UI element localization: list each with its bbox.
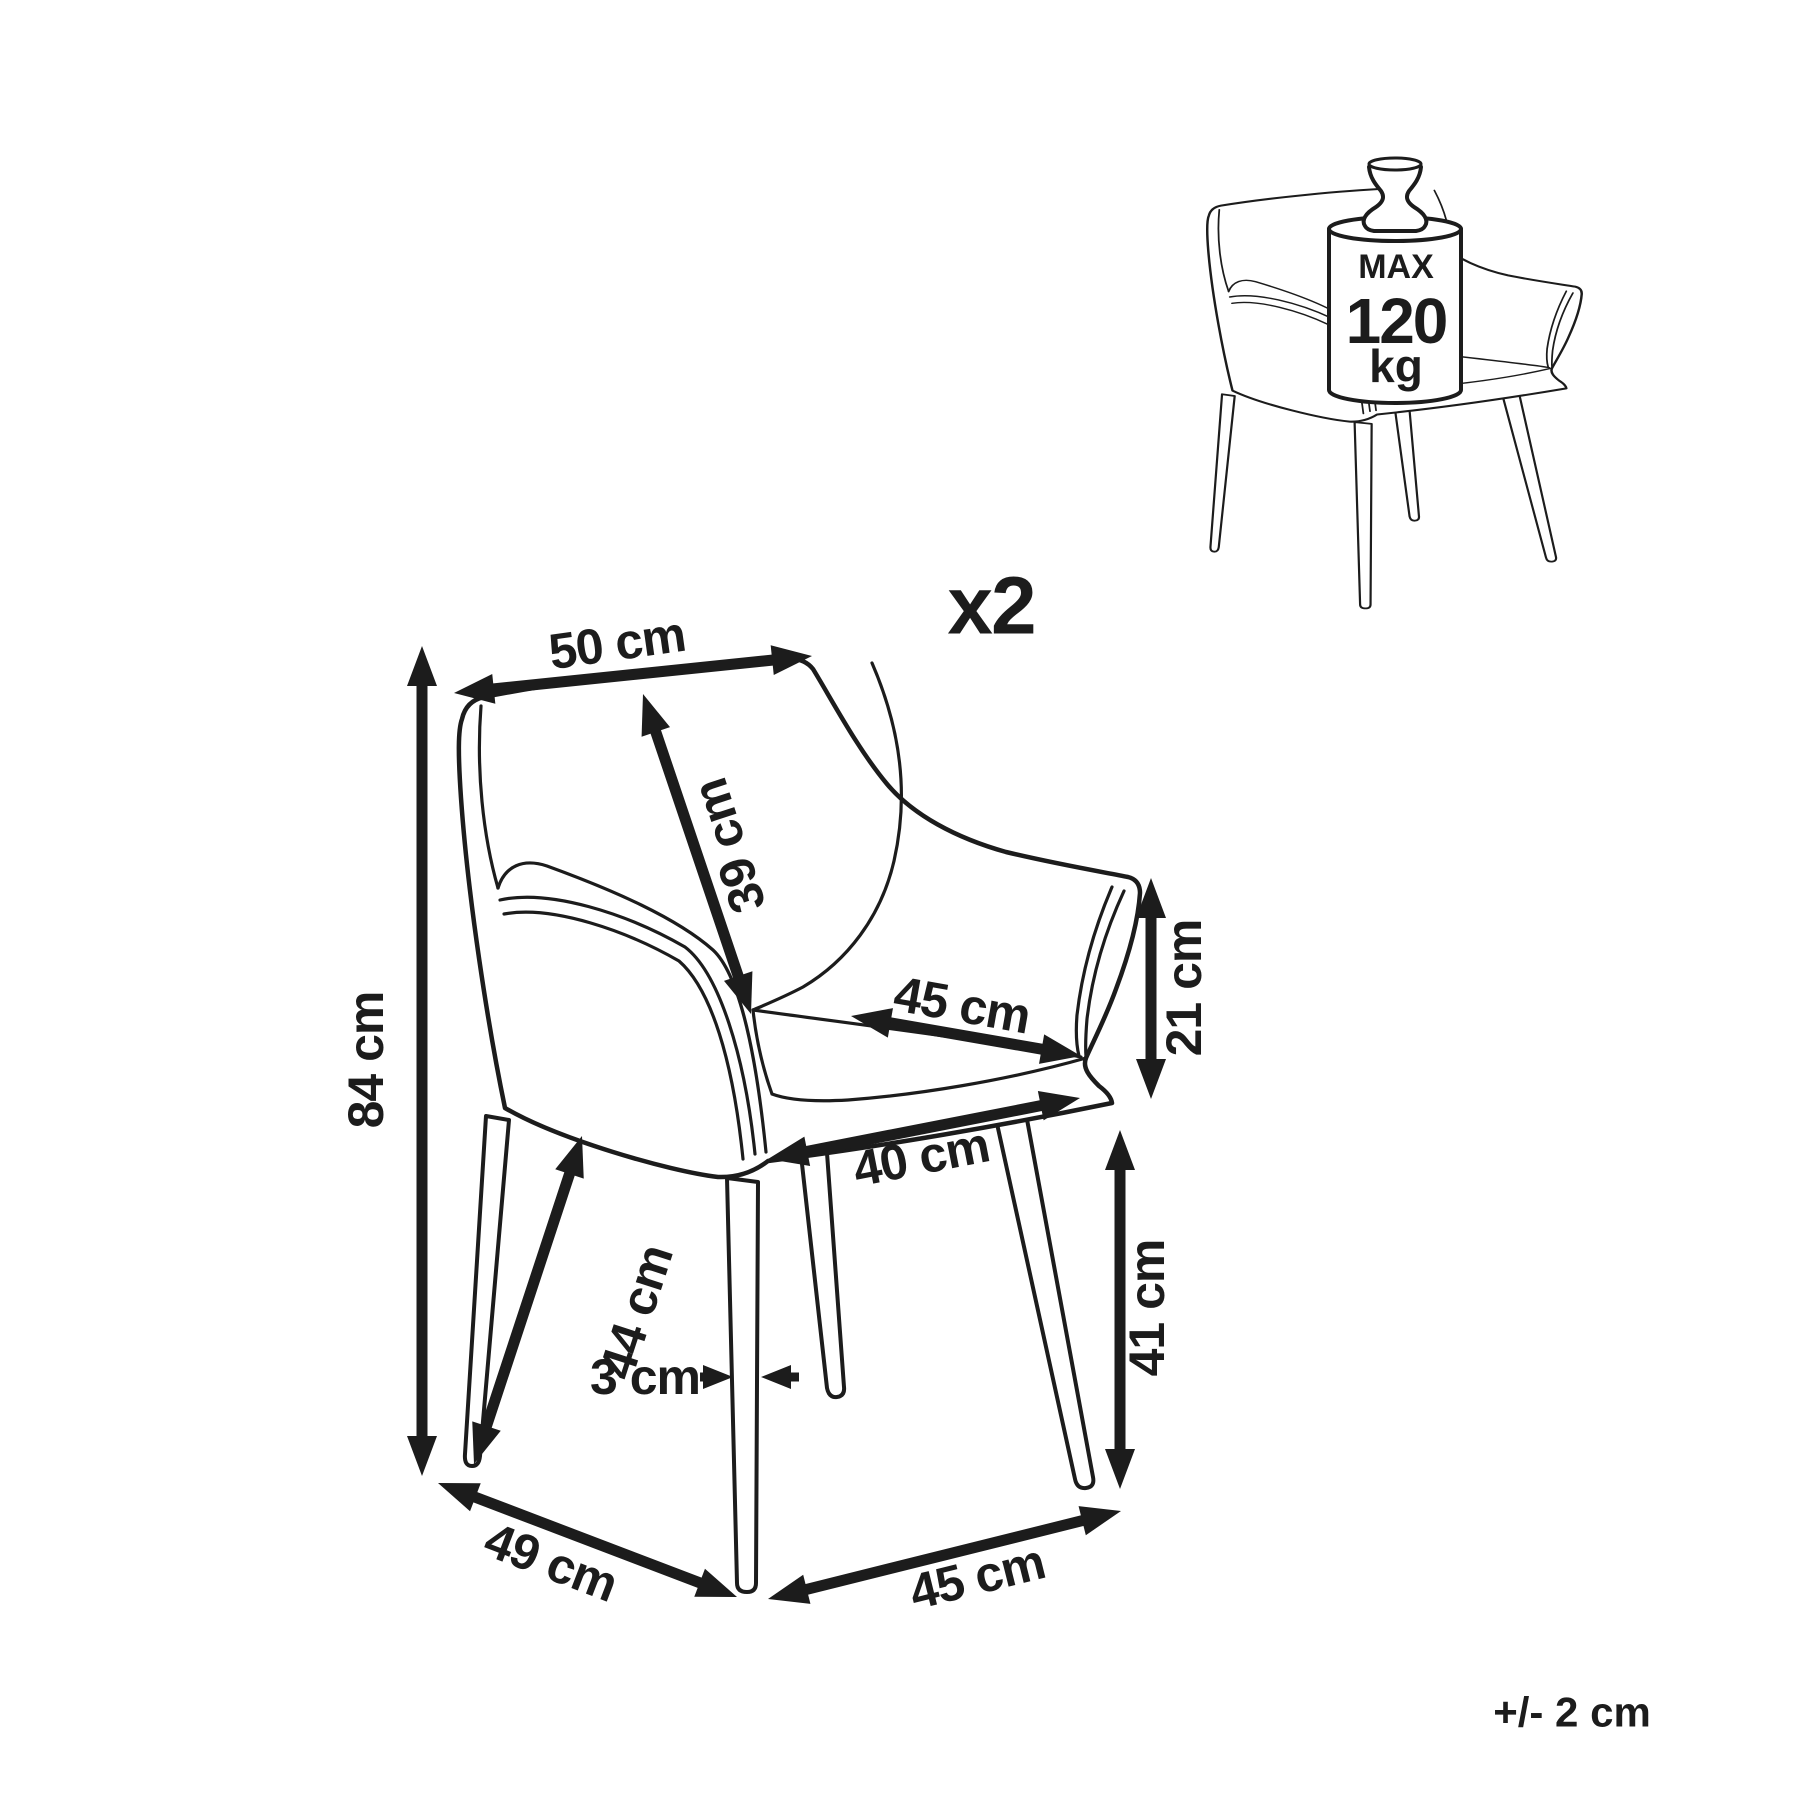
weight-knob-rim [1369,158,1421,170]
dimension-total-height: 84 cm [338,646,437,1476]
tolerance-label: +/- 2 cm [1493,1689,1651,1736]
dimension-label-total-height: 84 cm [338,992,394,1129]
chair-leg-back-right [994,1110,1093,1488]
arrowhead [438,1483,481,1511]
chair-leg-back-left [801,1153,844,1397]
arrowhead [1079,1506,1121,1535]
diagram-canvas: MAX 120 kg x2 +/- 2 cm 50 cm39 cm45 cm21… [0,0,1800,1800]
dimension-base-width: 45 cm [768,1506,1121,1621]
arrowhead [1105,1449,1135,1489]
dimension-label-armrest-height: 21 cm [1156,920,1212,1057]
weight-unit-label: kg [1369,340,1423,392]
quantity-label: x2 [947,561,1034,652]
arrowhead [694,1569,737,1597]
chair-leg-front-center [727,1178,758,1592]
dimension-base-depth: 49 cm [438,1483,737,1613]
arrowhead [703,1365,733,1389]
dimension-seat-height: 41 cm [1105,1130,1175,1489]
chair-legs [465,1110,1093,1592]
dimension-leg-thickness: 3 cm [590,1349,799,1405]
arrowhead [1136,1059,1166,1099]
dimension-armrest-height: 21 cm [1136,878,1212,1099]
arrowhead [761,1365,791,1389]
chair-dimension-diagram: MAX 120 kg x2 +/- 2 cm 50 cm39 cm45 cm21… [0,0,1800,1800]
arrowhead [407,646,437,686]
arrowhead [472,1421,500,1464]
arrowhead [407,1436,437,1476]
arrowhead [1105,1130,1135,1170]
dimension-label-seat-height: 41 cm [1119,1240,1175,1377]
main-chair-drawing [459,659,1140,1592]
dimension-label-leg-thickness: 3 cm [590,1349,700,1405]
arrowhead [555,1136,583,1179]
weight-max-label: MAX [1358,248,1434,286]
arrowhead [768,1575,810,1604]
